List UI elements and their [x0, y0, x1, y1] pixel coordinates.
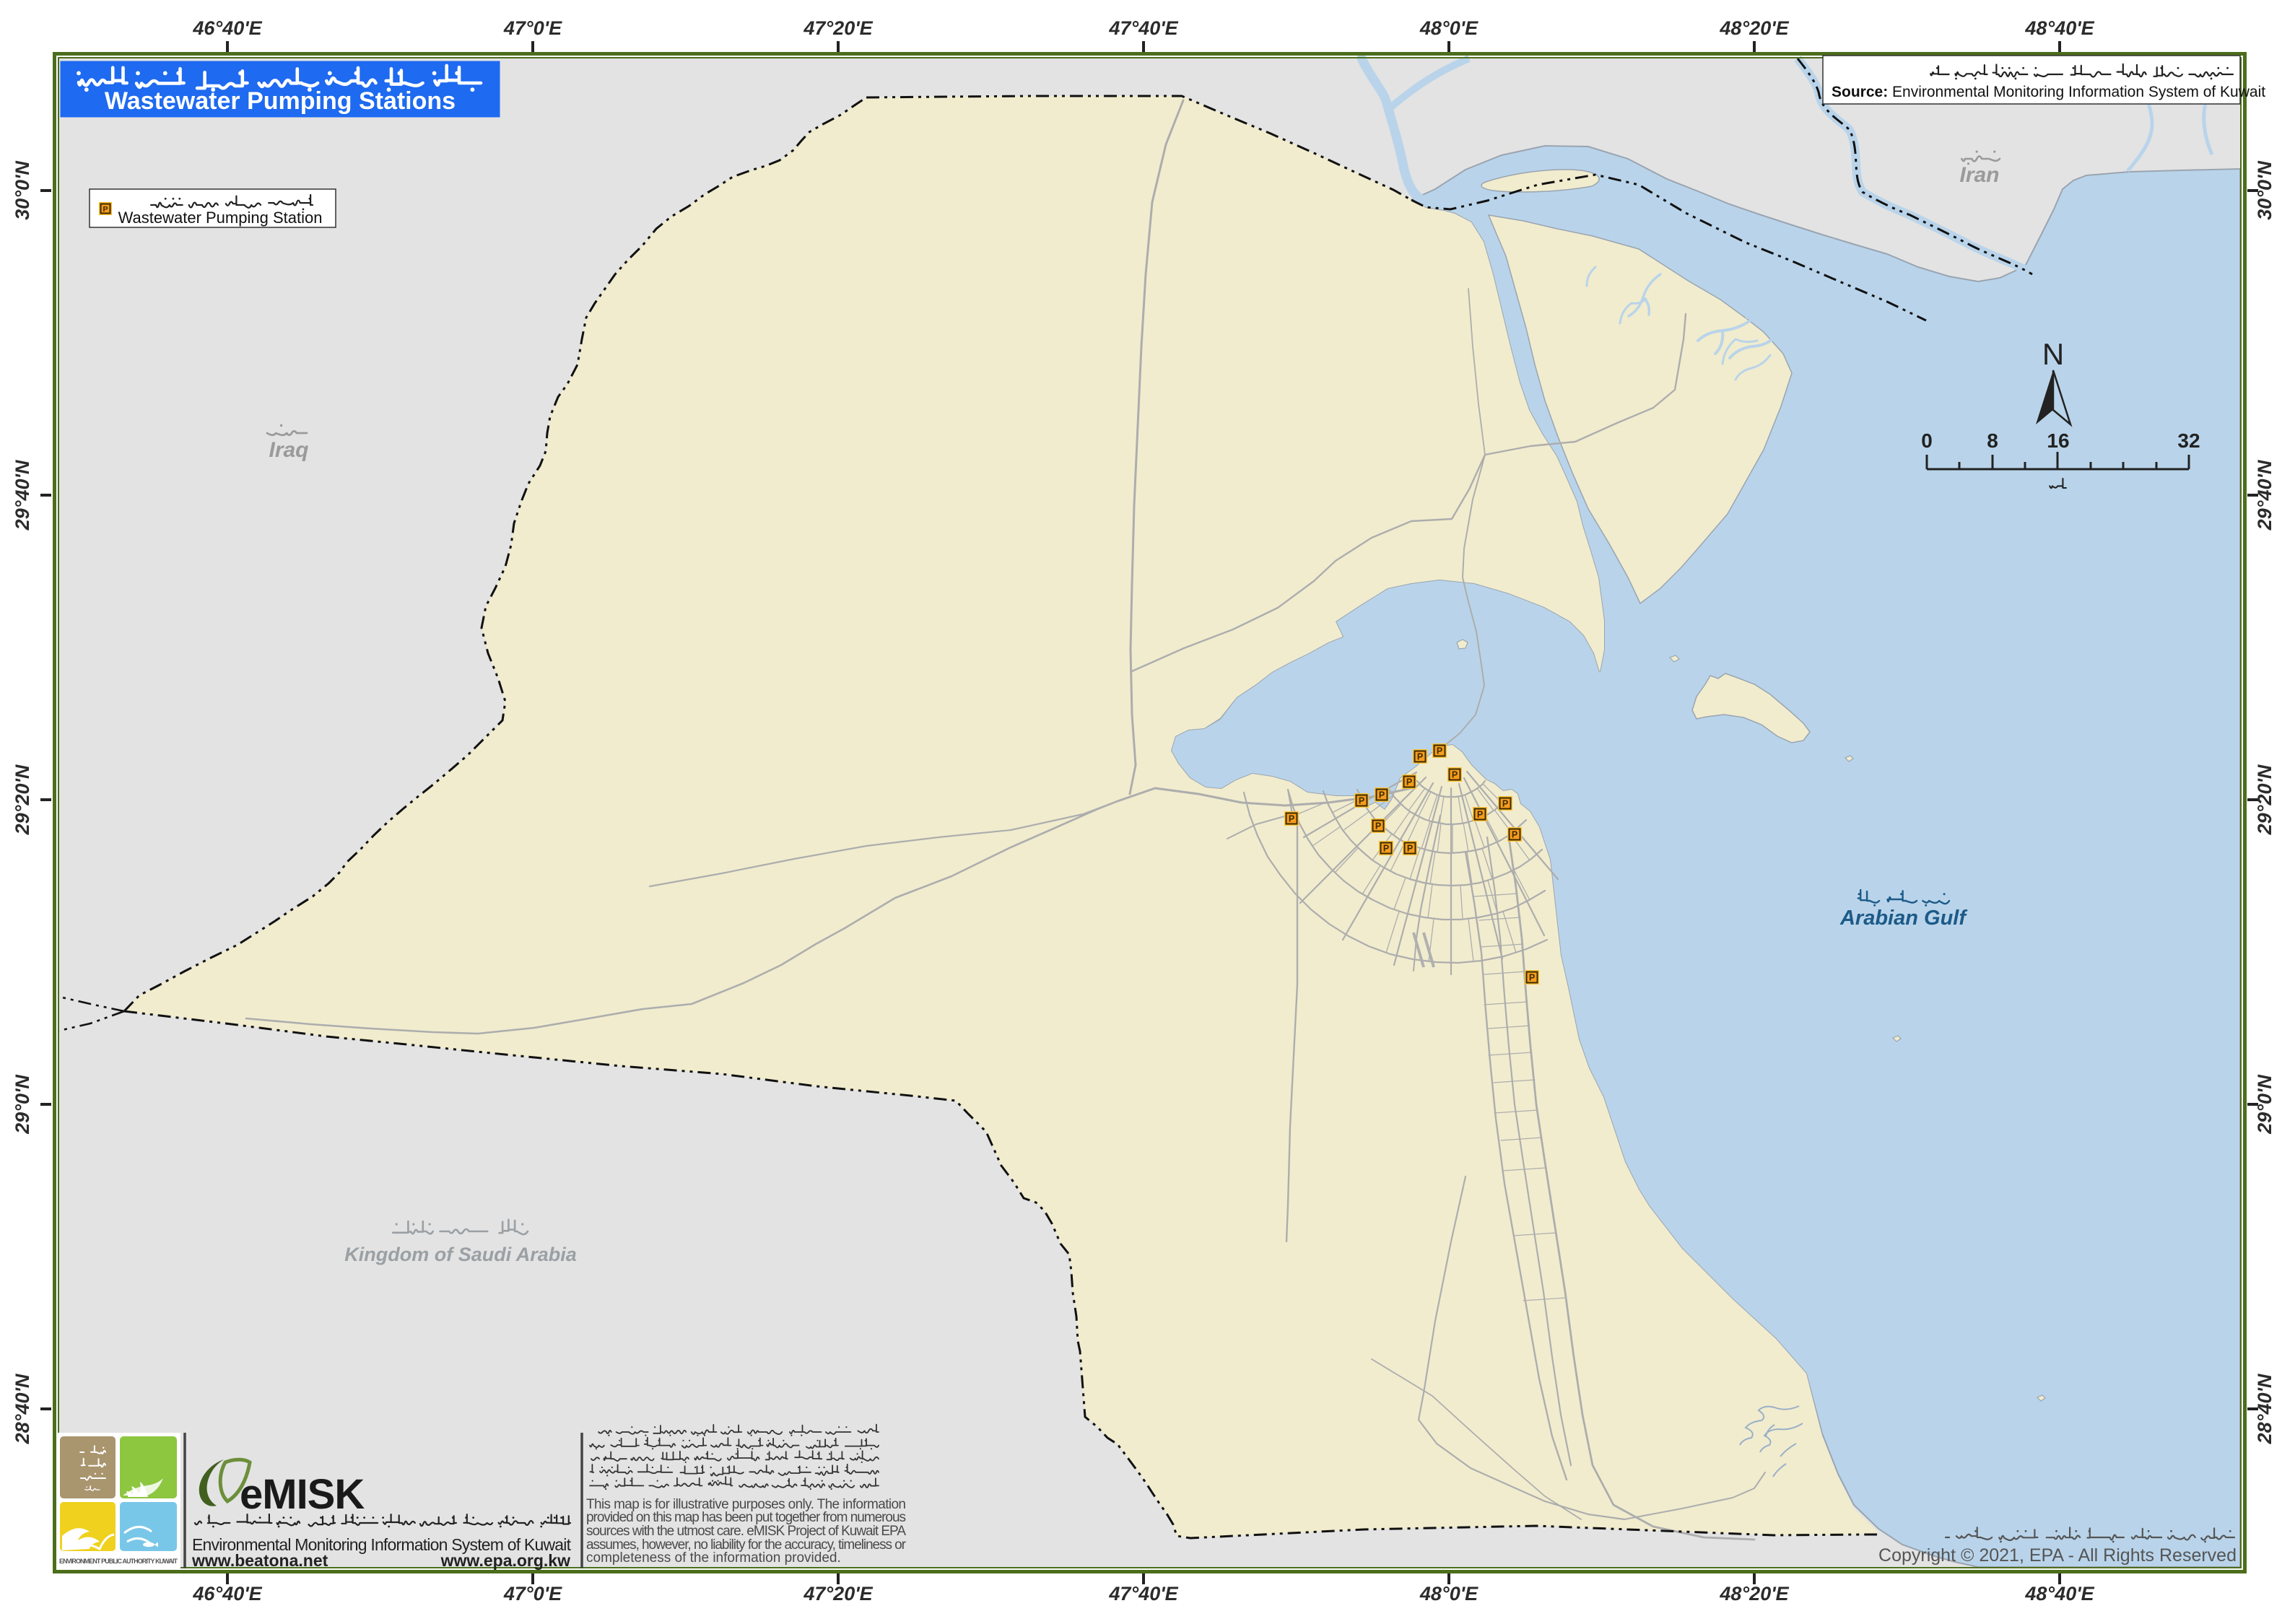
svg-text:32: 32 — [2177, 429, 2200, 452]
svg-text:48°20'E: 48°20'E — [1719, 1583, 1789, 1605]
svg-text:Iran: Iran — [1959, 163, 1999, 187]
svg-text:48°20'E: 48°20'E — [1719, 17, 1789, 39]
svg-text:Wastewater Pumping Station: Wastewater Pumping Station — [118, 209, 323, 227]
svg-text:29°40'N: 29°40'N — [2254, 460, 2276, 531]
svg-text:48°40'E: 48°40'E — [2024, 17, 2094, 39]
svg-text:48°0'E: 48°0'E — [1419, 17, 1479, 39]
svg-text:30°0'N: 30°0'N — [2254, 161, 2276, 220]
svg-text:ENVIRONMENT PUBLIC AUTHORITY K: ENVIRONMENT PUBLIC AUTHORITY KUWAIT — [59, 1558, 178, 1565]
svg-text:Kingdom of Saudi Arabia: Kingdom of Saudi Arabia — [344, 1244, 577, 1265]
svg-text:www.beatona.net: www.beatona.net — [191, 1551, 328, 1570]
svg-text:48°40'E: 48°40'E — [2024, 1583, 2094, 1605]
svg-text:46°40'E: 46°40'E — [192, 1583, 262, 1605]
svg-text:Source: Environmental Monitori: Source: Environmental Monitoring Informa… — [1832, 84, 2265, 100]
svg-text:P: P — [103, 205, 108, 214]
svg-text:0: 0 — [1921, 429, 1933, 452]
svg-text:Wastewater Pumping Stations: Wastewater Pumping Stations — [105, 87, 456, 115]
svg-text:www.epa.org.kw: www.epa.org.kw — [440, 1551, 570, 1570]
svg-text:46°40'E: 46°40'E — [192, 17, 262, 39]
svg-text:Copyright © 2021, EPA - All Ri: Copyright © 2021, EPA - All Rights Reser… — [1878, 1545, 2237, 1566]
svg-text:47°20'E: 47°20'E — [803, 17, 873, 39]
svg-text:Arabian Gulf: Arabian Gulf — [1839, 907, 1968, 930]
svg-text:47°0'E: 47°0'E — [503, 1583, 562, 1605]
svg-text:provided on this map has been: provided on this map has been put togeth… — [586, 1510, 906, 1525]
svg-text:47°0'E: 47°0'E — [503, 17, 562, 39]
svg-text:16: 16 — [2047, 429, 2069, 452]
svg-text:47°40'E: 47°40'E — [1108, 17, 1178, 39]
svg-text:47°20'E: 47°20'E — [803, 1583, 873, 1605]
svg-text:N: N — [2042, 337, 2064, 371]
svg-text:47°40'E: 47°40'E — [1108, 1583, 1178, 1605]
svg-text:29°0'N: 29°0'N — [12, 1075, 33, 1135]
svg-text:29°20'N: 29°20'N — [12, 764, 33, 835]
svg-text:28°40'N: 28°40'N — [2254, 1374, 2276, 1444]
svg-text:sources with the utmost care.: sources with the utmost care. eMISK Proj… — [586, 1524, 906, 1539]
svg-text:29°40'N: 29°40'N — [12, 460, 33, 531]
svg-text:8: 8 — [1987, 429, 1998, 452]
svg-text:Iraq: Iraq — [269, 438, 308, 462]
svg-text:29°0'N: 29°0'N — [2254, 1075, 2276, 1135]
svg-text:eMISK: eMISK — [240, 1471, 365, 1518]
svg-text:completeness of the informatio: completeness of the information provided… — [586, 1550, 841, 1566]
svg-text:28°40'N: 28°40'N — [12, 1374, 33, 1444]
svg-text:30°0'N: 30°0'N — [12, 161, 33, 220]
svg-text:29°20'N: 29°20'N — [2254, 764, 2276, 835]
svg-text:48°0'E: 48°0'E — [1419, 1583, 1479, 1605]
